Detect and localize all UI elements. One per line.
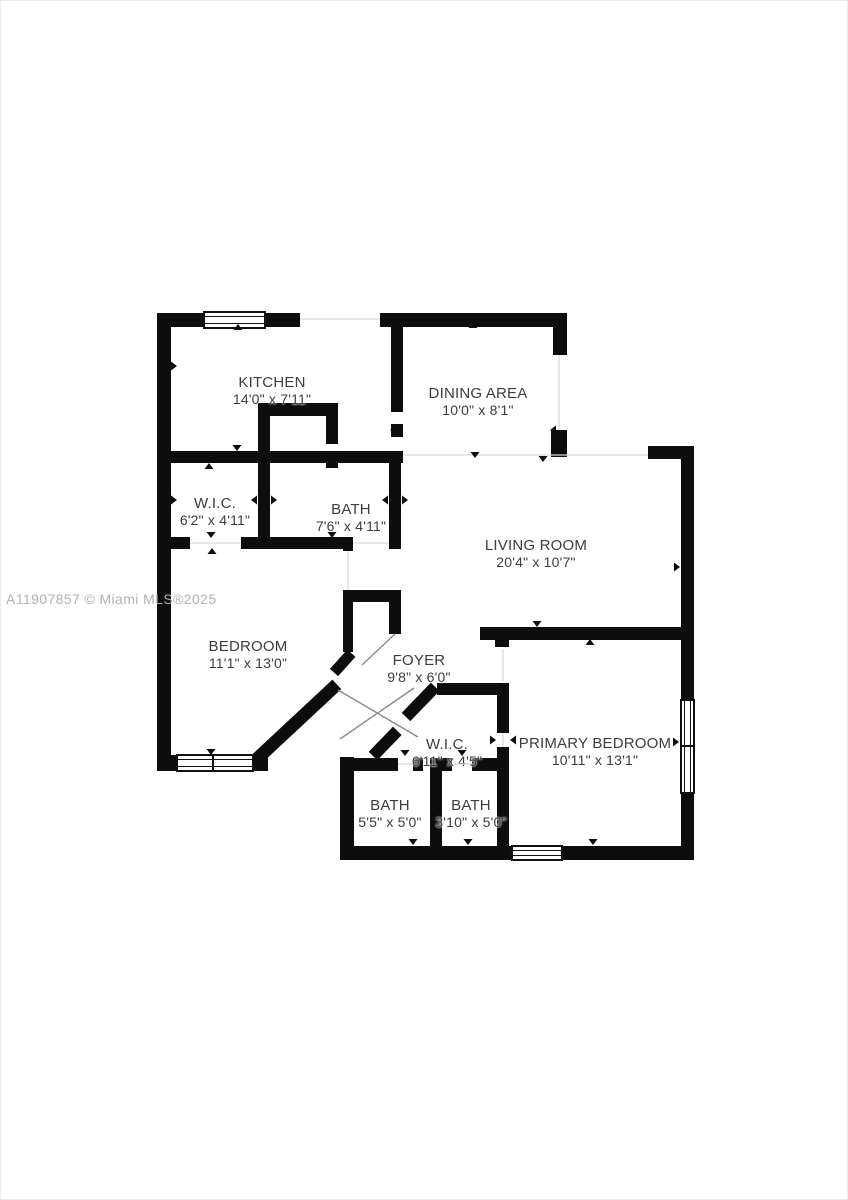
door-marker-icon bbox=[171, 362, 177, 371]
wall-bath-right-foot bbox=[389, 537, 401, 549]
room-dimensions: 3'10" x 5'0" bbox=[435, 814, 506, 830]
room-dimensions: 20'4" x 10'7" bbox=[485, 554, 587, 570]
room-name: BEDROOM bbox=[209, 639, 288, 655]
wall-entry-right bbox=[389, 590, 401, 634]
wall-kitchen-row-bottom bbox=[157, 451, 403, 463]
door-marker-icon bbox=[674, 563, 680, 572]
room-name: W.I.C. bbox=[180, 496, 250, 512]
room-name: PRIMARY BEDROOM bbox=[519, 736, 671, 752]
wall-bath1-left bbox=[340, 757, 354, 860]
room-name: BATH bbox=[316, 502, 386, 518]
wall-living-primary-divider bbox=[480, 627, 694, 640]
door-marker-icon bbox=[171, 496, 177, 505]
door-marker-icon bbox=[207, 532, 216, 538]
room-label-bedroom: BEDROOM 11'1" x 13'0" bbox=[209, 639, 288, 671]
wall-bedroom-top-a bbox=[157, 537, 190, 549]
wall-kitchen-peninsula-right-stub bbox=[326, 414, 338, 444]
room-dimensions: 6'2" x 4'11" bbox=[180, 512, 250, 528]
door-marker-icon bbox=[409, 839, 418, 845]
room-label-wic: W.I.C. 6'2" x 4'11" bbox=[180, 496, 250, 528]
room-name: BATH bbox=[358, 798, 421, 814]
room-label-primary-bedroom: PRIMARY BEDROOM 10'11" x 13'1" bbox=[519, 736, 671, 768]
wall-bottom-right-segment bbox=[562, 846, 694, 860]
door-marker-icon bbox=[589, 839, 598, 845]
room-name: KITCHEN bbox=[233, 375, 311, 391]
room-label-bath2: BATH 5'5" x 5'0" bbox=[358, 798, 421, 830]
room-label-living-room: LIVING ROOM 20'4" x 10'7" bbox=[485, 538, 587, 570]
room-name: FOYER bbox=[387, 653, 450, 669]
door-marker-icon bbox=[510, 736, 516, 745]
room-dimensions: 10'11" x 13'1" bbox=[519, 752, 671, 768]
door-marker-icon bbox=[208, 548, 217, 554]
door-marker-icon bbox=[205, 463, 214, 469]
window-bedroom bbox=[176, 754, 254, 772]
door-marker-icon bbox=[402, 496, 408, 505]
room-name: DINING AREA bbox=[429, 386, 528, 402]
wall-primary-door-stub bbox=[495, 627, 509, 647]
room-label-bath: BATH 7'6" x 4'11" bbox=[316, 502, 386, 534]
room-dimensions: 7'6" x 4'11" bbox=[316, 518, 386, 534]
wall-bedroom-diagonal bbox=[248, 680, 342, 769]
room-label-wic2: W.I.C. 6'11" x 4'5" bbox=[412, 737, 482, 769]
wall-kitchen-divider-stub bbox=[391, 424, 403, 437]
wall-dining-right-lower bbox=[551, 430, 567, 457]
door-marker-icon bbox=[401, 750, 410, 756]
room-dimensions: 14'0" x 7'11" bbox=[233, 391, 311, 407]
window-divider bbox=[212, 755, 214, 771]
room-dimensions: 9'8" x 6'0" bbox=[387, 669, 450, 685]
wall-bottom-left-segment bbox=[340, 846, 512, 860]
door-marker-icon bbox=[490, 736, 496, 745]
room-name: LIVING ROOM bbox=[485, 538, 587, 554]
door-marker-icon bbox=[471, 452, 480, 458]
window-primary-bedroom bbox=[680, 699, 695, 794]
wall-foyer-stub-top bbox=[343, 537, 353, 551]
room-dimensions: 5'5" x 5'0" bbox=[358, 814, 421, 830]
door-marker-icon bbox=[251, 496, 257, 505]
floor-plan-image: KITCHEN 14'0" x 7'11" DINING AREA 10'0" … bbox=[0, 0, 848, 1200]
window-bottom bbox=[511, 845, 563, 861]
door-marker-icon bbox=[271, 496, 277, 505]
window-divider bbox=[681, 745, 694, 747]
room-dimensions: 6'11" x 4'5" bbox=[412, 753, 482, 769]
room-label-foyer: FOYER 9'8" x 6'0" bbox=[387, 653, 450, 685]
wall-right-upper bbox=[681, 446, 694, 700]
room-label-bath3: BATH 3'10" x 5'0" bbox=[435, 798, 506, 830]
wall-wic2-diagonal-lower bbox=[369, 727, 402, 761]
wall-wic-bath-divider bbox=[258, 451, 270, 549]
room-name: BATH bbox=[435, 798, 506, 814]
wall-top-dining bbox=[380, 313, 567, 327]
door-marker-icon bbox=[464, 839, 473, 845]
room-dimensions: 11'1" x 13'0" bbox=[209, 655, 288, 671]
wall-wic2-right-upper bbox=[497, 683, 509, 733]
wall-kitchen-dining-divider bbox=[391, 313, 403, 412]
room-dimensions: 10'0" x 8'1" bbox=[429, 402, 528, 418]
wall-dining-right-upper bbox=[553, 313, 567, 355]
room-label-dining-area: DINING AREA 10'0" x 8'1" bbox=[429, 386, 528, 418]
wall-wic2-diagonal-upper bbox=[402, 683, 440, 722]
door-marker-icon bbox=[673, 738, 679, 747]
window-kitchen bbox=[203, 311, 266, 329]
wall-bath-right bbox=[389, 451, 401, 549]
room-label-kitchen: KITCHEN 14'0" x 7'11" bbox=[233, 375, 311, 407]
mls-watermark: A11907857 © Miami MLS®2025 bbox=[6, 591, 217, 607]
door-marker-icon bbox=[539, 456, 548, 462]
wall-foyer-diagonal-stub bbox=[330, 649, 356, 676]
room-name: W.I.C. bbox=[412, 737, 482, 753]
wall-bedroom-top-b bbox=[241, 537, 353, 549]
